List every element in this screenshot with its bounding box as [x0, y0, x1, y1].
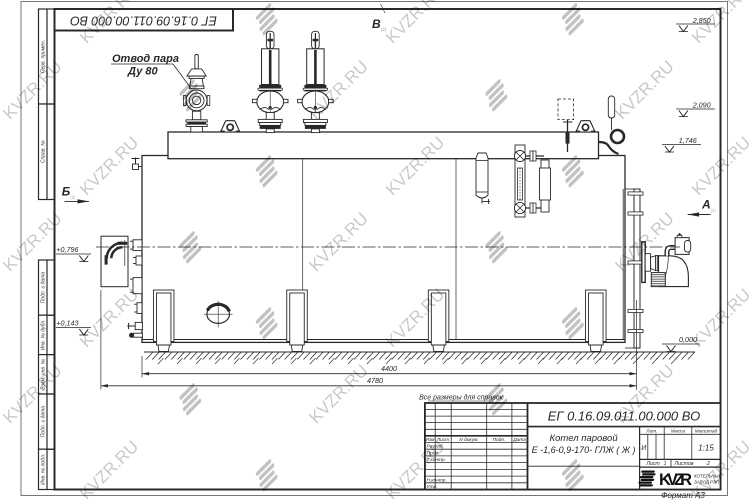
svg-text:KVZR.RU: KVZR.RU: [0, 57, 66, 123]
svg-text:KVZR.RU: KVZR.RU: [306, 57, 372, 123]
svg-text:KVZR.RU: KVZR.RU: [0, 361, 66, 427]
svg-text:KVZR.RU: KVZR.RU: [688, 0, 750, 47]
svg-text:KVZR.RU: KVZR.RU: [382, 133, 448, 199]
svg-text:KVZR.RU: KVZR.RU: [382, 437, 448, 500]
svg-text:KVZR.RU: KVZR.RU: [76, 133, 142, 199]
svg-text:KVZR.RU: KVZR.RU: [76, 0, 142, 47]
svg-text:KVZR.RU: KVZR.RU: [306, 361, 372, 427]
svg-text:KVZR.RU: KVZR.RU: [382, 0, 448, 47]
svg-text:KVZR.RU: KVZR.RU: [688, 437, 750, 500]
svg-text:KVZR.RU: KVZR.RU: [612, 209, 678, 275]
svg-text:KVZR.RU: KVZR.RU: [76, 285, 142, 351]
svg-text:KVZR.RU: KVZR.RU: [382, 285, 448, 351]
svg-text:KVZR.RU: KVZR.RU: [76, 437, 142, 500]
svg-text:KVZR.RU: KVZR.RU: [612, 57, 678, 123]
svg-text:KVZR.RU: KVZR.RU: [688, 133, 750, 199]
svg-text:KVZR.RU: KVZR.RU: [0, 209, 66, 275]
svg-text:KVZR.RU: KVZR.RU: [688, 285, 750, 351]
svg-text:KVZR.RU: KVZR.RU: [612, 361, 678, 427]
svg-text:KVZR.RU: KVZR.RU: [306, 209, 372, 275]
